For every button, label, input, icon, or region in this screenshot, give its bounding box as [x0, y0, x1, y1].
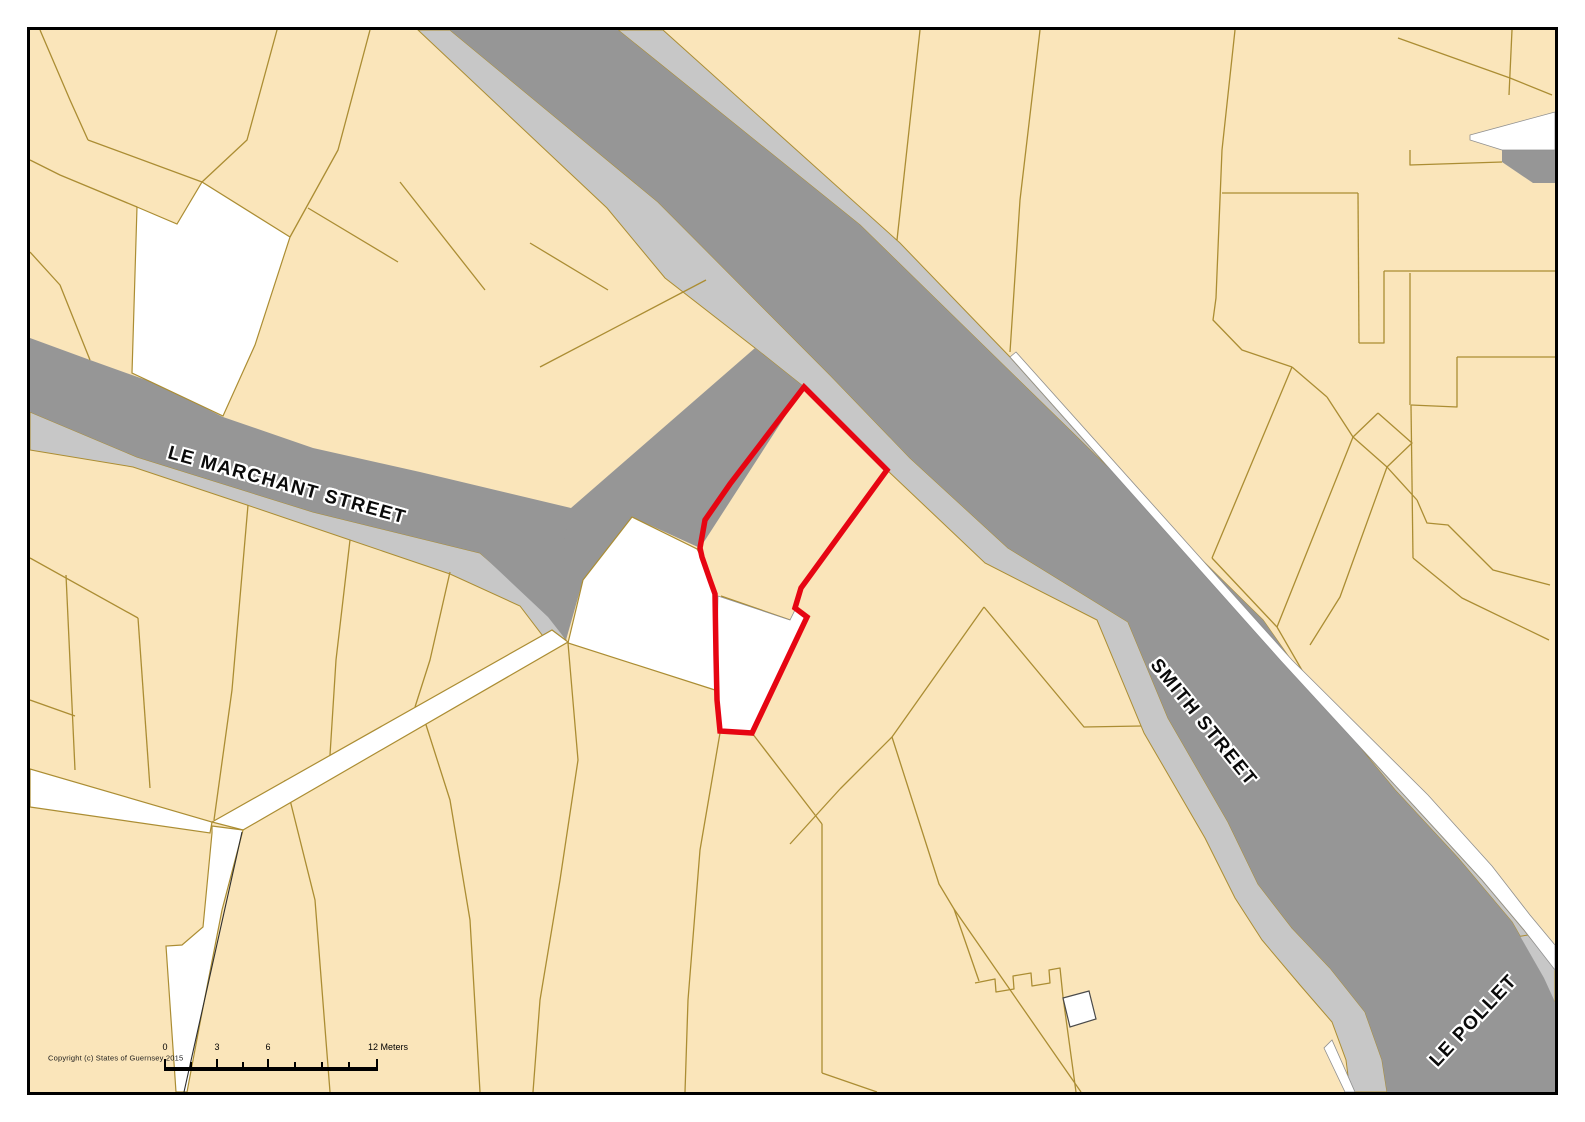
map-frame-border	[27, 27, 1558, 1095]
map-stage: LE MARCHANT STREET SMITH STREET LE POLLE…	[0, 0, 1585, 1122]
